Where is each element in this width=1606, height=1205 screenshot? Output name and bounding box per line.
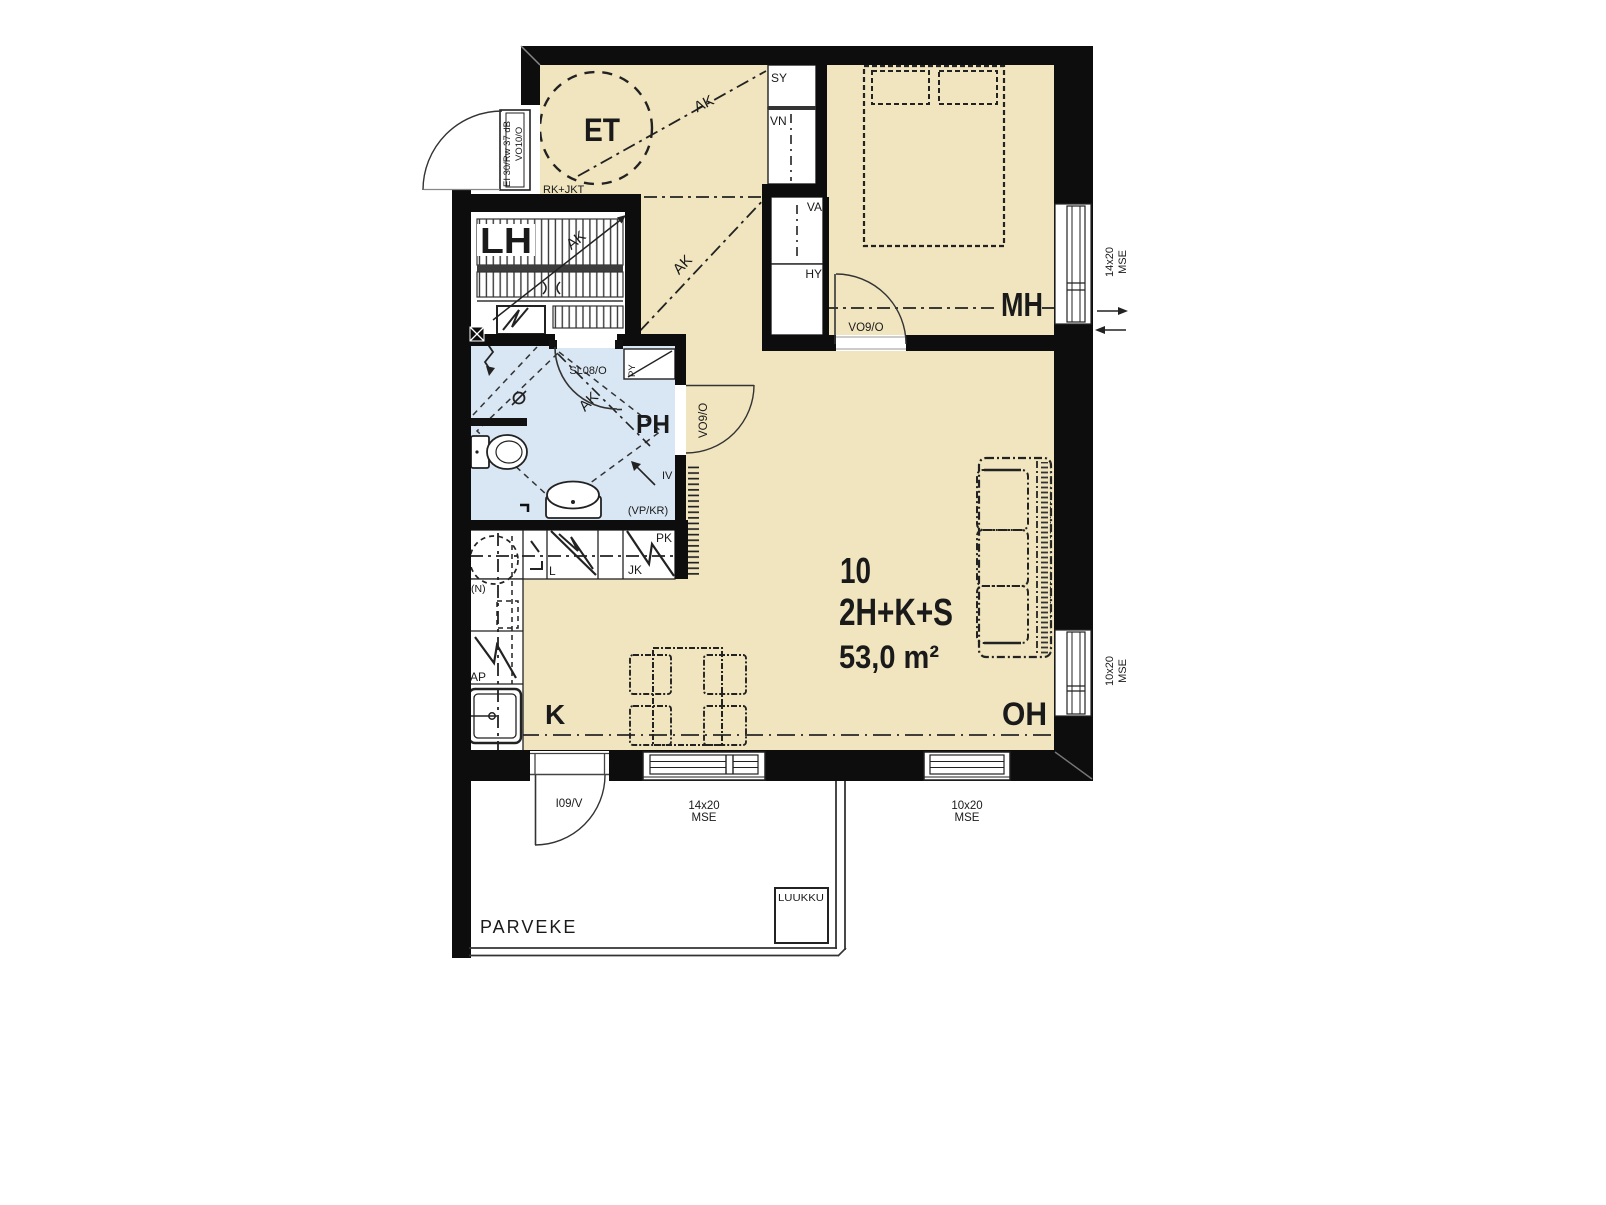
svg-text:SY: SY <box>771 71 787 85</box>
svg-text:EI 30/Rw 37 dB: EI 30/Rw 37 dB <box>502 121 513 187</box>
svg-text:L: L <box>549 564 556 578</box>
svg-text:VA: VA <box>807 200 822 214</box>
svg-text:PY: PY <box>627 364 638 377</box>
svg-text:IV: IV <box>662 470 673 482</box>
svg-text:SL08/O: SL08/O <box>569 365 607 377</box>
svg-text:PH: PH <box>636 409 670 439</box>
svg-text:AP: AP <box>470 670 486 684</box>
svg-text:10: 10 <box>840 550 871 591</box>
svg-text:ET: ET <box>584 112 620 148</box>
svg-text:MSE: MSE <box>1117 250 1129 274</box>
svg-text:VO10/O: VO10/O <box>514 127 525 161</box>
svg-text:PARVEKE: PARVEKE <box>480 917 577 937</box>
svg-text:MSE: MSE <box>955 812 980 824</box>
svg-text:HY: HY <box>805 267 822 281</box>
svg-text:OH: OH <box>1002 696 1047 732</box>
svg-text:MSE: MSE <box>692 812 717 824</box>
svg-text:VN: VN <box>770 114 787 128</box>
svg-text:JK: JK <box>628 563 642 577</box>
svg-text:VO9/O: VO9/O <box>848 322 883 334</box>
svg-text:LUUKKU: LUUKKU <box>778 892 824 904</box>
svg-text:I09/V: I09/V <box>556 798 583 810</box>
svg-text:MSE: MSE <box>1117 659 1129 683</box>
svg-text:14x20: 14x20 <box>688 800 719 812</box>
svg-text:(VP/KR): (VP/KR) <box>628 505 668 517</box>
svg-text:K: K <box>545 699 565 730</box>
svg-text:14x20: 14x20 <box>1104 247 1116 277</box>
svg-text:MH: MH <box>1001 286 1043 323</box>
svg-text:VO9/O: VO9/O <box>698 403 710 438</box>
svg-text:53,0 m²: 53,0 m² <box>839 639 939 675</box>
svg-text:PK: PK <box>656 531 672 545</box>
svg-text:(N): (N) <box>471 583 486 595</box>
svg-text:10x20: 10x20 <box>1104 656 1116 686</box>
svg-text:2H+K+S: 2H+K+S <box>839 592 953 634</box>
svg-text:10x20: 10x20 <box>951 800 982 812</box>
svg-text:LH: LH <box>480 220 532 261</box>
